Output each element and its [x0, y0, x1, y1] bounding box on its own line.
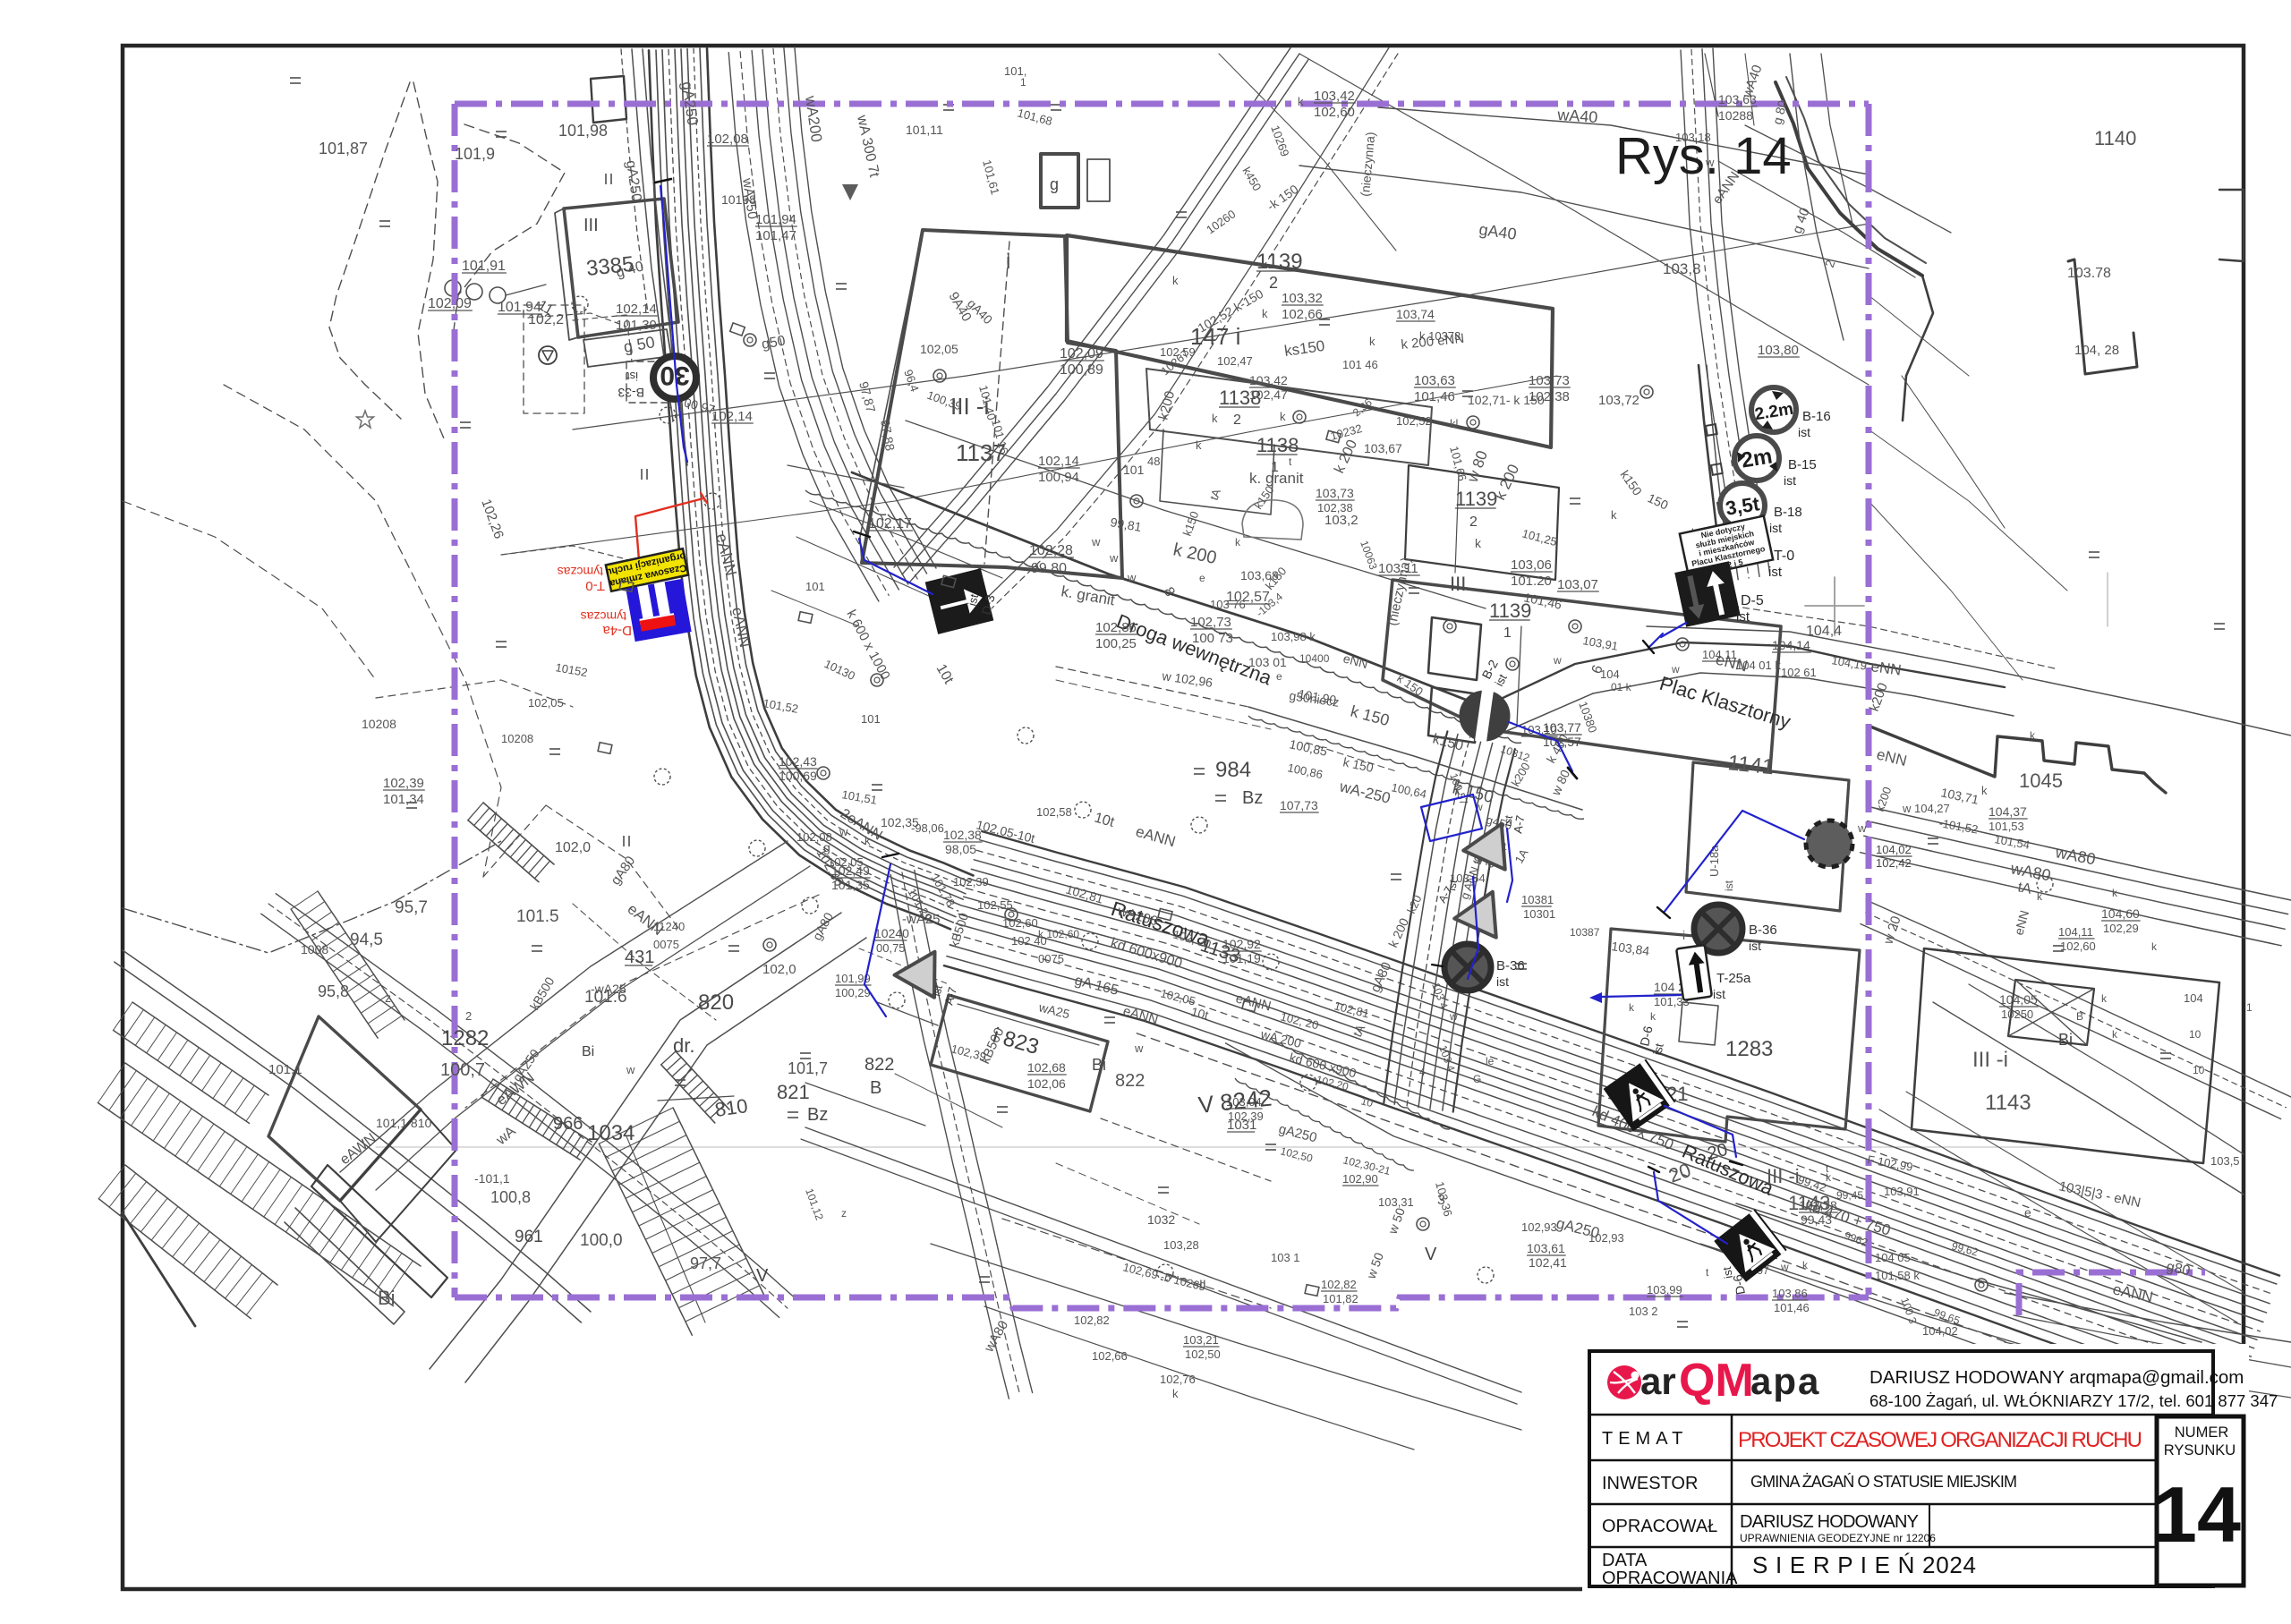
svg-text:104,37: 104,37	[1989, 804, 2027, 819]
svg-text:10: 10	[2193, 1064, 2205, 1076]
svg-text:102,52: 102,52	[1396, 414, 1432, 428]
svg-text:w: w	[1671, 663, 1680, 676]
svg-text:102,09: 102,09	[1060, 346, 1103, 361]
svg-text:102,39: 102,39	[953, 875, 989, 889]
svg-text:k: k	[1475, 536, 1482, 550]
svg-text:102,14: 102,14	[616, 302, 657, 317]
svg-text:104 01 k: 104 01 k	[1736, 659, 1781, 672]
svg-text:104,60: 104,60	[2101, 906, 2140, 921]
svg-text:k. granit: k. granit	[1249, 470, 1304, 487]
svg-text:g: g	[1050, 175, 1059, 193]
svg-text:w: w	[1127, 571, 1137, 584]
svg-text:104,4: 104,4	[1806, 624, 1842, 639]
svg-text:ist: ist	[1798, 425, 1810, 439]
svg-text:k: k	[1981, 784, 1988, 797]
svg-text:95,7: 95,7	[395, 898, 428, 917]
svg-text:102,66: 102,66	[1092, 1349, 1128, 1363]
svg-text:z: z	[385, 991, 391, 1005]
svg-text:k 10373: k 10373	[1419, 329, 1461, 343]
svg-text:w: w	[839, 825, 848, 838]
svg-text:w: w	[626, 1063, 635, 1076]
svg-text:984: 984	[1215, 758, 1251, 782]
svg-text:ist: ist	[1769, 521, 1782, 535]
svg-text:GMINA ŻAGAŃ O STATUSIE MIEJSKI: GMINA ŻAGAŃ O STATUSIE MIEJSKIM	[1750, 1473, 2017, 1491]
svg-text:OPRACOWAŁ: OPRACOWAŁ	[1602, 1517, 1717, 1536]
svg-text:102,08: 102,08	[707, 132, 748, 147]
svg-text:U-18a: U-18a	[1708, 845, 1721, 877]
svg-text:102,09: 102,09	[428, 296, 472, 311]
svg-text:102,76: 102,76	[1160, 1373, 1196, 1386]
svg-text:k: k	[1172, 274, 1179, 287]
svg-text:104 05: 104 05	[1875, 1251, 1911, 1264]
svg-text:101: 101	[1123, 463, 1145, 477]
svg-text:ist: ist	[1723, 880, 1735, 891]
svg-text:102 61: 102 61	[1781, 666, 1817, 679]
svg-text:103,91: 103,91	[1884, 1185, 1920, 1198]
svg-text:99,45: 99,45	[1836, 1189, 1863, 1202]
svg-text:14: 14	[2153, 1470, 2241, 1559]
svg-text:NUMER: NUMER	[2175, 1424, 2229, 1441]
svg-text:102,47: 102,47	[1217, 354, 1253, 368]
svg-text:w: w	[1109, 551, 1119, 565]
svg-text:B: B	[2076, 1010, 2083, 1023]
svg-text:1139: 1139	[1455, 488, 1497, 510]
svg-text:1032: 1032	[1147, 1212, 1175, 1227]
svg-text:-101,1: -101,1	[474, 1171, 510, 1186]
svg-text:k: k	[2037, 890, 2043, 903]
svg-text:822: 822	[864, 1055, 894, 1075]
svg-text:T-0: T-0	[585, 578, 605, 593]
svg-text:103,74: 103,74	[1396, 307, 1435, 321]
svg-text:II: II	[1199, 1277, 1206, 1291]
svg-text:B: B	[870, 1078, 881, 1098]
svg-text:103,2: 103,2	[1324, 513, 1358, 528]
svg-text:00,75: 00,75	[876, 941, 906, 955]
svg-text:w: w	[1780, 1261, 1789, 1273]
svg-text:104 11: 104 11	[1702, 648, 1737, 661]
svg-text:k: k	[1280, 410, 1286, 423]
svg-text:2: 2	[465, 1009, 472, 1023]
svg-text:3: 3	[1437, 1193, 1445, 1208]
svg-text:102,41: 102,41	[1529, 1255, 1567, 1270]
svg-text:100,25: 100,25	[1095, 636, 1137, 651]
svg-text:III -i: III -i	[1972, 1048, 2008, 1072]
svg-text:102,28: 102,28	[1029, 543, 1073, 558]
svg-text:101,46: 101,46	[1774, 1301, 1810, 1314]
svg-text:OPRACOWANIA: OPRACOWANIA	[1602, 1569, 1738, 1588]
svg-text:68-100 Żagań, ul. WŁÓKNIARZY 1: 68-100 Żagań, ul. WŁÓKNIARZY 17/2, tel. …	[1869, 1391, 2278, 1410]
svg-text:4: 4	[1419, 1066, 1426, 1078]
svg-text:1: 1	[2246, 1001, 2253, 1014]
svg-text:103,8: 103,8	[1663, 260, 1701, 277]
svg-text:w: w	[1449, 1010, 1458, 1023]
svg-text:104,05: 104,05	[1999, 992, 2038, 1007]
svg-text:2m: 2m	[1740, 444, 1774, 472]
svg-text:102,60: 102,60	[1314, 105, 1355, 120]
svg-text:103,61: 103,61	[1527, 1241, 1565, 1255]
svg-text:1282: 1282	[441, 1026, 489, 1050]
svg-text:101,34: 101,34	[383, 792, 424, 807]
svg-text:DARIUSZ HODOWANY: DARIUSZ HODOWANY	[1740, 1512, 1919, 1532]
svg-text:PROJEKT CZASOWEJ ORGANIZACJI R: PROJEKT CZASOWEJ ORGANIZACJI RUCHU	[1738, 1428, 2142, 1452]
svg-text:UPRAWNIENIA GEODEZYJNE nr 1220: UPRAWNIENIA GEODEZYJNE nr 12206	[1740, 1532, 1936, 1544]
svg-text:102,66: 102,66	[1282, 307, 1323, 322]
svg-text:103,99: 103,99	[1647, 1283, 1682, 1297]
svg-text:10288: 10288	[1718, 108, 1753, 123]
svg-text:10381: 10381	[1521, 893, 1554, 906]
svg-text:B-15: B-15	[1788, 457, 1817, 472]
svg-text:102,93: 102,93	[1521, 1220, 1557, 1234]
svg-text:1139: 1139	[1256, 250, 1303, 274]
svg-text:tymczas: tymczas	[558, 565, 603, 579]
svg-text:k: k	[1369, 335, 1375, 348]
svg-text:100,89: 100,89	[1060, 362, 1103, 378]
svg-text:101,19: 101,19	[1222, 951, 1261, 965]
svg-text:104,02: 104,02	[1922, 1324, 1958, 1338]
svg-text:102,68: 102,68	[1027, 1060, 1066, 1075]
svg-text:10240: 10240	[874, 926, 909, 940]
svg-text:k: k	[1212, 412, 1218, 425]
svg-text:k: k	[864, 834, 871, 847]
svg-text:101,1: 101,1	[268, 1062, 302, 1077]
svg-text:48: 48	[1147, 455, 1160, 468]
svg-text:101,46: 101,46	[1414, 389, 1455, 404]
svg-text:103,07: 103,07	[1557, 577, 1598, 592]
svg-text:apa: apa	[1750, 1360, 1820, 1402]
svg-text:107,73: 107,73	[1280, 798, 1318, 812]
svg-text:103,77: 103,77	[1543, 720, 1581, 735]
svg-text:102,38: 102,38	[1317, 501, 1353, 514]
svg-text:102,06: 102,06	[1027, 1076, 1066, 1091]
svg-text:102,82: 102,82	[1321, 1278, 1357, 1291]
svg-text:103,73: 103,73	[1316, 486, 1354, 500]
svg-text:820: 820	[698, 991, 734, 1015]
svg-text:10: 10	[2189, 1028, 2202, 1041]
svg-text:1143: 1143	[1985, 1091, 2031, 1115]
svg-text:101,82: 101,82	[1323, 1292, 1358, 1305]
svg-text:w: w	[1857, 821, 1867, 835]
svg-text:100,29: 100,29	[835, 986, 871, 999]
svg-text:10250: 10250	[2001, 1008, 2033, 1021]
svg-text:k: k	[2030, 729, 2036, 742]
svg-text:RYSUNKU: RYSUNKU	[2164, 1442, 2236, 1458]
svg-text:104, 28: 104, 28	[2074, 343, 2119, 358]
svg-text:103,63: 103,63	[1414, 373, 1455, 388]
svg-text:104,14: 104,14	[1772, 638, 1810, 652]
svg-text:10208: 10208	[362, 717, 396, 731]
svg-text:D-5: D-5	[1741, 593, 1764, 608]
svg-text:0075: 0075	[1038, 952, 1064, 965]
svg-text:Bi: Bi	[582, 1044, 594, 1059]
svg-text:98,05: 98,05	[945, 842, 976, 856]
svg-text:DATA: DATA	[1602, 1551, 1648, 1570]
svg-text:w: w	[1134, 1042, 1144, 1055]
svg-text:T-0: T-0	[1774, 548, 1794, 564]
svg-text:101 46: 101 46	[1342, 358, 1378, 371]
svg-text:i: i	[1682, 928, 1685, 942]
svg-text:101,94: 101,94	[755, 212, 796, 227]
svg-text:V: V	[1425, 1245, 1437, 1264]
svg-text:101: 101	[805, 580, 825, 593]
svg-text:101,35: 101,35	[831, 878, 870, 892]
svg-text:Bz: Bz	[807, 1105, 828, 1125]
svg-text:101.5: 101.5	[516, 907, 559, 926]
svg-text:ist: ist	[1713, 987, 1725, 1001]
svg-text:104,11: 104,11	[2058, 925, 2093, 939]
svg-text:102,73: 102,73	[1190, 615, 1231, 630]
svg-text:101,39: 101,39	[616, 318, 657, 333]
svg-text:103 76: 103 76	[1210, 598, 1246, 611]
svg-text:01 k: 01 k	[1611, 681, 1632, 693]
svg-text:-98,06: -98,06	[911, 821, 944, 835]
svg-text:10208: 10208	[501, 732, 533, 745]
svg-text:B-18: B-18	[1774, 505, 1802, 520]
svg-text:G: G	[1473, 1073, 1481, 1085]
svg-text:Bi: Bi	[1092, 1056, 1106, 1074]
svg-text:102,50: 102,50	[1185, 1348, 1221, 1361]
svg-text:102,42: 102,42	[1876, 856, 1912, 870]
svg-text:431: 431	[625, 948, 654, 967]
svg-text:100,0: 100,0	[580, 1231, 623, 1250]
svg-text:3385: 3385	[585, 252, 635, 281]
svg-text:1031: 1031	[1227, 1118, 1256, 1133]
svg-text:2: 2	[1233, 412, 1241, 428]
svg-text:103,80: 103,80	[1758, 343, 1799, 358]
svg-text:95,8: 95,8	[318, 982, 349, 1000]
svg-text:102,14: 102,14	[711, 409, 753, 424]
svg-text:103,67: 103,67	[1364, 441, 1402, 455]
svg-text:dr.: dr.	[673, 1034, 694, 1057]
svg-text:1: 1	[1503, 625, 1512, 641]
svg-text:1034: 1034	[587, 1121, 634, 1145]
svg-text:94,5: 94,5	[350, 931, 383, 949]
svg-text:1141: 1141	[1726, 751, 1775, 779]
svg-text:102,49: 102,49	[831, 863, 870, 878]
svg-text:102,05: 102,05	[528, 696, 564, 710]
svg-text:103.78: 103.78	[2067, 266, 2111, 281]
svg-text:103 2: 103 2	[1629, 1305, 1658, 1318]
svg-text:III: III	[1450, 573, 1466, 595]
svg-text:103,86: 103,86	[1772, 1287, 1808, 1300]
svg-text:104: 104	[2184, 991, 2203, 1005]
svg-text:Bi: Bi	[2058, 1031, 2073, 1049]
svg-text:102 40: 102 40	[1011, 934, 1047, 948]
svg-text:101,98: 101,98	[558, 122, 608, 140]
svg-text:QM: QM	[1679, 1355, 1754, 1407]
svg-text:i: i	[1006, 250, 1010, 274]
svg-text:102,60: 102,60	[1002, 916, 1038, 930]
svg-text:103,42: 103,42	[1249, 373, 1288, 387]
svg-text:102,05: 102,05	[920, 342, 958, 356]
svg-text:103,73: 103,73	[1529, 373, 1570, 388]
svg-text:100,69: 100,69	[779, 769, 817, 783]
svg-text:w: w	[1091, 535, 1101, 548]
svg-text:102,38: 102,38	[1529, 389, 1570, 404]
svg-text:102,39: 102,39	[383, 776, 424, 791]
svg-text:100,8: 100,8	[490, 1188, 531, 1206]
svg-text:10301: 10301	[1523, 907, 1555, 921]
svg-text:ist: ist	[1768, 565, 1783, 580]
svg-text:966: 966	[553, 1114, 583, 1134]
svg-text:S I E R P I E Ń 2024: S I E R P I E Ń 2024	[1752, 1552, 1976, 1578]
svg-text:wA40: wA40	[1556, 106, 1598, 126]
svg-text:III -i: III -i	[1767, 1165, 1800, 1187]
svg-text:1140: 1140	[2094, 127, 2136, 149]
svg-text:w 104,27: w 104,27	[1902, 802, 1950, 815]
svg-text:DARIUSZ HODOWANY arqmapa@gma: DARIUSZ HODOWANY arqmapa@gmail.com	[1869, 1367, 2244, 1388]
svg-text:101,47: 101,47	[755, 228, 796, 243]
svg-text:101,7: 101,7	[788, 1059, 828, 1077]
svg-text:1138: 1138	[1256, 434, 1299, 456]
svg-text:Bz: Bz	[1242, 788, 1263, 808]
svg-text:101,1 810: 101,1 810	[376, 1116, 431, 1130]
svg-text:ar: ar	[1640, 1360, 1676, 1402]
svg-text:101,53: 101,53	[1989, 820, 2024, 833]
svg-text:w: w	[1553, 654, 1562, 667]
svg-text:k: k	[1611, 508, 1617, 522]
svg-text:102,0: 102,0	[555, 840, 591, 855]
svg-text:k: k	[1802, 1259, 1809, 1271]
svg-text:e: e	[1199, 572, 1205, 584]
svg-text:B-33: B-33	[617, 386, 644, 400]
svg-text:1045: 1045	[2019, 769, 2063, 792]
svg-text:102,17: 102,17	[868, 516, 912, 531]
svg-text:810: 810	[713, 1094, 749, 1121]
svg-text:10400: 10400	[1299, 652, 1330, 665]
svg-text:k: k	[1172, 1387, 1179, 1400]
svg-text:102,82: 102,82	[1074, 1314, 1110, 1327]
svg-text:k: k	[2112, 887, 2118, 899]
svg-text:1008: 1008	[301, 942, 328, 957]
svg-text:102,43: 102,43	[779, 754, 817, 769]
svg-text:k: k	[1650, 1010, 1657, 1023]
svg-text:101: 101	[861, 712, 881, 726]
svg-text:k: k	[2151, 940, 2158, 953]
svg-text:kl: kl	[1450, 417, 1459, 430]
svg-text:B-36: B-36	[1749, 923, 1777, 938]
svg-text:z: z	[841, 1207, 847, 1220]
svg-text:e: e	[2024, 1205, 2031, 1220]
svg-text:V: V	[756, 1266, 769, 1286]
svg-text:101,58 k: 101,58 k	[1875, 1269, 1920, 1282]
svg-text:102,47: 102,47	[1249, 387, 1288, 402]
svg-text:102,14: 102,14	[1038, 454, 1079, 469]
svg-text:99 80: 99 80	[1031, 561, 1067, 576]
svg-text:k: k	[1262, 307, 1268, 320]
svg-text:102,0: 102,0	[762, 962, 796, 977]
svg-text:Bi: Bi	[378, 1287, 396, 1309]
svg-text:k: k	[1196, 438, 1202, 452]
svg-text:III: III	[583, 216, 599, 235]
svg-text:103,98 k: 103,98 k	[1271, 630, 1316, 643]
svg-text:tymczas: tymczas	[581, 609, 626, 624]
svg-text:100,7: 100,7	[440, 1060, 485, 1080]
svg-text:ist: ist	[1496, 974, 1509, 989]
svg-text:B-16: B-16	[1802, 409, 1831, 424]
svg-text:102,60: 102,60	[2060, 940, 2096, 953]
svg-text:103,5: 103,5	[2210, 1154, 2240, 1168]
svg-text:INWESTOR: INWESTOR	[1602, 1474, 1698, 1493]
svg-text:103,28: 103,28	[1163, 1238, 1199, 1252]
svg-text:97,7: 97,7	[690, 1254, 721, 1272]
svg-text:k: k	[2112, 1028, 2118, 1041]
svg-text:ist: ist	[1784, 473, 1796, 488]
svg-text:11240: 11240	[653, 920, 685, 933]
svg-text:100 73: 100 73	[1192, 631, 1233, 646]
svg-text:10387: 10387	[1570, 926, 1600, 939]
svg-text:k: k	[1298, 95, 1304, 108]
svg-text:961: 961	[515, 1228, 543, 1246]
svg-text:D-4a: D-4a	[602, 623, 632, 638]
svg-text:103,21: 103,21	[1183, 1333, 1219, 1347]
svg-text:ist: ist	[1749, 939, 1761, 953]
svg-text:103 1: 103 1	[1271, 1251, 1300, 1264]
svg-text:101,91: 101,91	[462, 259, 506, 274]
svg-text:101,11: 101,11	[906, 123, 943, 137]
svg-text:102,90: 102,90	[1342, 1172, 1378, 1186]
svg-text:2: 2	[1269, 274, 1278, 292]
svg-text:102,92: 102,92	[1222, 937, 1261, 951]
svg-text:B-36: B-36	[1496, 958, 1525, 974]
svg-text:ist: ist	[626, 370, 638, 383]
svg-text:ist: ist	[1736, 609, 1750, 625]
svg-text:101,9: 101,9	[455, 145, 495, 163]
svg-text:103,72: 103,72	[1598, 393, 1639, 408]
svg-text:T-25a: T-25a	[1716, 971, 1751, 986]
svg-text:k: k	[2101, 992, 2108, 1005]
svg-text:101.20: 101.20	[1511, 574, 1552, 589]
svg-text:-wA25: -wA25	[591, 982, 626, 996]
svg-text:TEMAT: TEMAT	[1602, 1429, 1688, 1449]
svg-text:102,86: 102,86	[1095, 620, 1137, 635]
svg-text:821: 821	[777, 1081, 810, 1103]
svg-text:822: 822	[1115, 1071, 1145, 1091]
svg-text:k: k	[1629, 1001, 1635, 1014]
svg-text:103,32: 103,32	[1282, 291, 1323, 306]
svg-text:102,08: 102,08	[796, 830, 832, 844]
svg-text:103,42: 103,42	[1314, 89, 1355, 104]
svg-text:1283: 1283	[1725, 1037, 1773, 1061]
svg-text:k: k	[1235, 536, 1241, 548]
svg-text:103,06: 103,06	[1511, 557, 1552, 573]
svg-text:1: 1	[1020, 76, 1026, 89]
svg-text:e: e	[1276, 670, 1282, 683]
svg-text:Rys. 14: Rys. 14	[1615, 127, 1792, 185]
svg-text:le: le	[1486, 1055, 1495, 1067]
svg-text:2: 2	[1469, 514, 1478, 530]
svg-text:103 01: 103 01	[1248, 655, 1287, 669]
svg-text:104,02: 104,02	[1876, 843, 1912, 856]
svg-text:102,29: 102,29	[2103, 922, 2139, 935]
svg-text:102,58: 102,58	[1036, 805, 1072, 819]
svg-text:0075: 0075	[653, 938, 679, 951]
svg-text:100,94: 100,94	[1038, 470, 1079, 485]
svg-text:101,87: 101,87	[319, 140, 368, 157]
